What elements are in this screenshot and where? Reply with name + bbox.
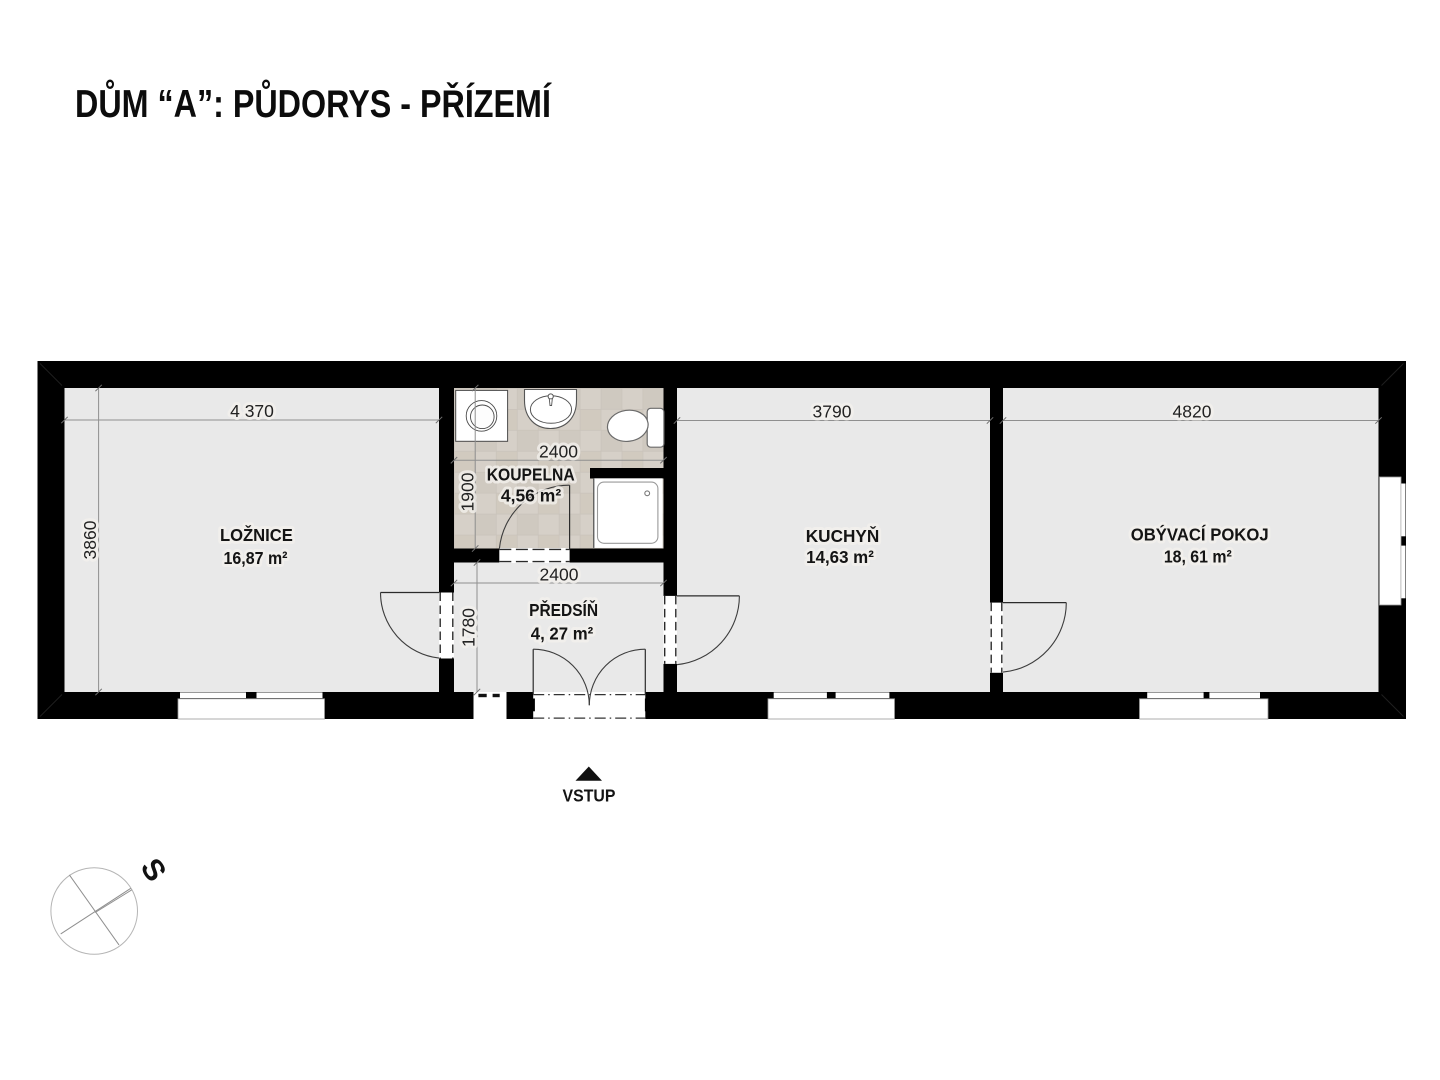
svg-text:14,63 m²: 14,63 m² <box>806 547 874 567</box>
svg-text:KOUPELNA: KOUPELNA <box>487 465 575 485</box>
svg-text:KUCHYŇ: KUCHYŇ <box>806 526 879 546</box>
svg-text:4, 27 m²: 4, 27 m² <box>531 623 594 643</box>
svg-text:4 370: 4 370 <box>230 401 274 421</box>
svg-text:VSTUP: VSTUP <box>563 786 616 806</box>
svg-text:PŘEDSÍŇ: PŘEDSÍŇ <box>529 600 598 620</box>
svg-text:1780: 1780 <box>459 608 479 647</box>
svg-text:3790: 3790 <box>813 402 852 422</box>
svg-text:16,87 m²: 16,87 m² <box>224 548 288 568</box>
svg-text:4820: 4820 <box>1173 402 1212 422</box>
svg-text:1900: 1900 <box>458 472 478 511</box>
svg-text:LOŽNICE: LOŽNICE <box>220 526 293 545</box>
svg-text:2400: 2400 <box>540 564 579 584</box>
svg-text:DŮM “A”: PŮDORYS - PŘÍZEMÍ: DŮM “A”: PŮDORYS - PŘÍZEMÍ <box>75 79 552 126</box>
svg-text:OBÝVACÍ POKOJ: OBÝVACÍ POKOJ <box>1131 525 1269 544</box>
svg-text:18, 61 m²: 18, 61 m² <box>1164 547 1232 567</box>
svg-text:2400: 2400 <box>539 441 578 461</box>
svg-text:4,56 m²: 4,56 m² <box>501 486 561 506</box>
svg-text:3860: 3860 <box>80 520 100 559</box>
